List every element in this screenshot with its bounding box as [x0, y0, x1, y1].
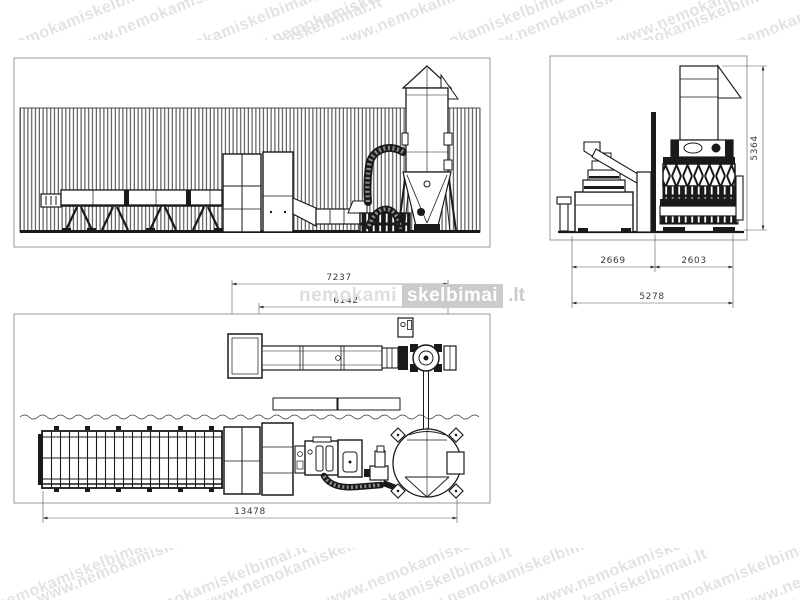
logo-text-nemokami: nemokami: [299, 285, 397, 307]
platform-right: [338, 398, 400, 410]
end-elevation-view: 2669 2603 5278 5364: [550, 56, 767, 308]
belt-conveyor-plan: [38, 426, 222, 492]
logo-text-lt: .lt: [508, 285, 525, 307]
control-cabinets: [223, 152, 293, 232]
dim-label-2669: 2669: [600, 256, 625, 266]
site-logo: nemokami skelbimai .lt: [299, 284, 525, 308]
dim-label-13478: 13478: [234, 507, 266, 517]
cabinets-plan: [224, 423, 293, 495]
dim-label-2603: 2603: [681, 256, 706, 266]
round-tank-plan: [391, 427, 464, 499]
plan-view: 7237 6142: [14, 273, 490, 523]
platform-left: [273, 398, 337, 410]
dim-label-5278: 5278: [639, 292, 664, 302]
logo-text-skelbimai: skelbimai: [402, 284, 503, 308]
dim-label-5364: 5364: [750, 135, 760, 160]
dim-label-7237: 7237: [326, 273, 351, 283]
classified-ad-image: www.nemokamiskelbimai.lt www.nemokamiske…: [0, 0, 800, 600]
pump-motor-group: [295, 437, 362, 477]
support-pole: [651, 112, 656, 232]
side-elevation-view: [14, 58, 490, 247]
front-panel: [637, 172, 651, 232]
